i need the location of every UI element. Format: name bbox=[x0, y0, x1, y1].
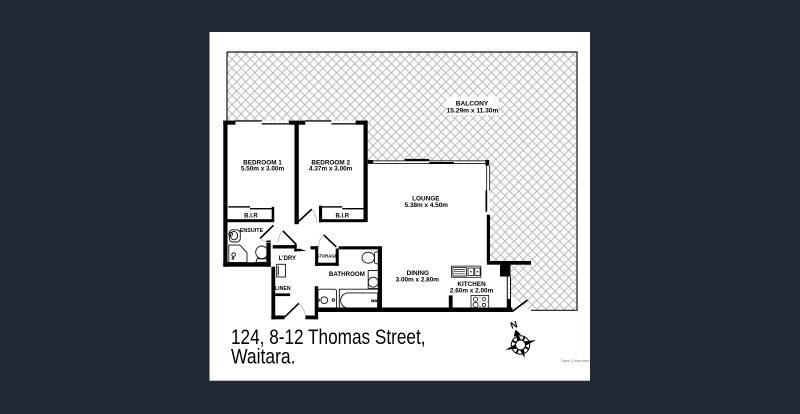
svg-text:BALCONY: BALCONY bbox=[456, 100, 489, 107]
svg-text:5.38m x 4.50m: 5.38m x 4.50m bbox=[405, 202, 449, 209]
svg-text:BATHROOM: BATHROOM bbox=[329, 271, 365, 278]
svg-text:Waitara.: Waitara. bbox=[231, 346, 296, 369]
svg-text:2.60m x 2.00m: 2.60m x 2.00m bbox=[450, 288, 494, 295]
svg-text:4.37m x 3.00m: 4.37m x 3.00m bbox=[309, 166, 353, 173]
svg-text:5.50m x 3.00m: 5.50m x 3.00m bbox=[241, 166, 285, 173]
svg-text:Open 2 View item: Open 2 View item bbox=[561, 359, 589, 363]
svg-text:3.00m x 2.80m: 3.00m x 2.80m bbox=[396, 277, 440, 284]
svg-text:STORAGE: STORAGE bbox=[317, 253, 338, 258]
svg-text:B.I.R: B.I.R bbox=[244, 214, 258, 220]
svg-text:ENSUITE: ENSUITE bbox=[240, 228, 264, 234]
svg-text:LINEN: LINEN bbox=[275, 286, 291, 292]
svg-text:15.29m x 11.30m: 15.29m x 11.30m bbox=[447, 108, 499, 115]
svg-text:L’DRY: L’DRY bbox=[279, 256, 296, 262]
svg-text:B.I.R: B.I.R bbox=[335, 213, 349, 219]
